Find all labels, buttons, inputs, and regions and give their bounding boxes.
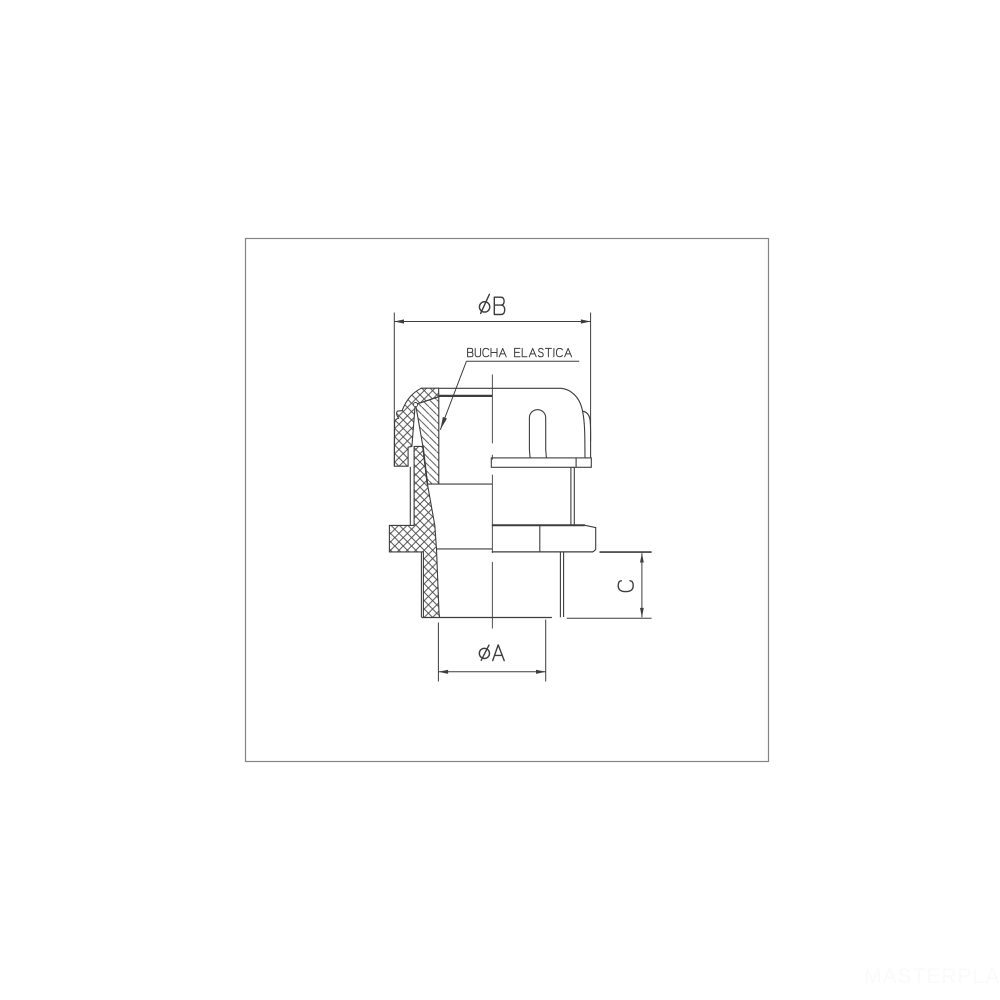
svg-text:MASTERPLAST: MASTERPLAST xyxy=(864,965,1000,988)
